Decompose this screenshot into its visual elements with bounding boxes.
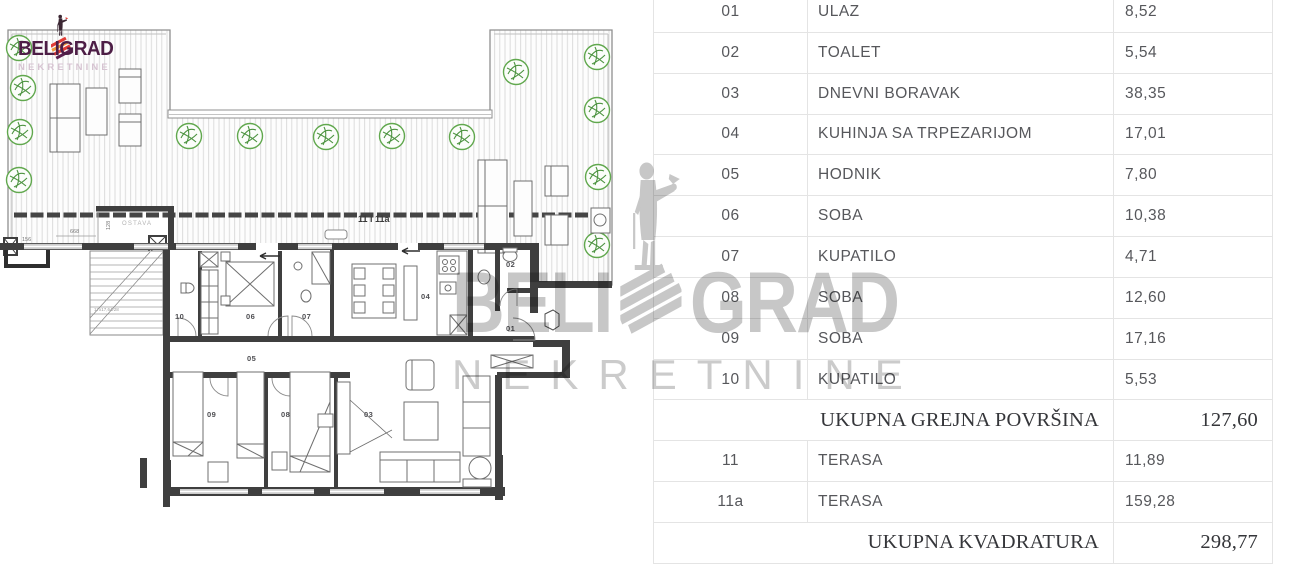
table-row: 08 SOBA 12,60 — [654, 278, 1272, 319]
room-area-cell: 7,80 — [1113, 155, 1272, 195]
screenshot-stage: OSTAVA 668 128 156 17x17,64/28 — [0, 0, 1314, 564]
room-name-cell: SOBA — [807, 196, 1113, 236]
plan-label-10: 10 — [175, 312, 184, 321]
brand-right: GRAD — [59, 38, 113, 61]
room-number-cell: 04 — [654, 115, 807, 155]
entrance-arrow — [260, 253, 280, 259]
room-number-cell: 07 — [654, 237, 807, 277]
room-area-cell: 11,89 — [1113, 441, 1272, 481]
room-area-cell: 159,28 — [1113, 482, 1272, 522]
plan-label-05: 05 — [247, 354, 256, 363]
room-name-cell: SOBA — [807, 278, 1113, 318]
brand-subtitle: NEKRETNINE — [18, 62, 114, 73]
summary-value-cell: 127,60 — [1113, 400, 1272, 440]
floor-plan: OSTAVA 668 128 156 17x17,64/28 — [0, 0, 660, 564]
plan-label-07: 07 — [302, 312, 311, 321]
table-summary-row: UKUPNA GREJNA POVRŠINA 127,60 — [654, 400, 1272, 441]
table-row: 04 KUHINJA SA TRPEZARIJOM 17,01 — [654, 115, 1272, 156]
room-name-cell: ULAZ — [807, 0, 1113, 32]
room-area-cell: 17,01 — [1113, 115, 1272, 155]
plan-label-06: 06 — [246, 312, 255, 321]
room-number-cell: 01 — [654, 0, 807, 32]
plan-label-04: 04 — [421, 292, 431, 301]
room-area-cell: 4,71 — [1113, 237, 1272, 277]
brand-left: BELI — [18, 38, 59, 61]
room-name-cell: TOALET — [807, 33, 1113, 73]
dim-128: 128 — [106, 221, 112, 230]
table-row: 07 KUPATILO 4,71 — [654, 237, 1272, 278]
summary-label-cell: UKUPNA KVADRATURA — [654, 523, 1113, 563]
storage-label: OSTAVA — [122, 221, 152, 227]
table-row: 01 ULAZ 8,52 — [654, 0, 1272, 33]
table-summary-row: UKUPNA KVADRATURA 298,77 — [654, 523, 1272, 564]
summary-value-cell: 298,77 — [1113, 523, 1272, 563]
room-number-cell: 05 — [654, 155, 807, 195]
room-number-cell: 11a — [654, 482, 807, 522]
plan-label-08: 08 — [281, 410, 290, 419]
dim-156: 156 — [22, 237, 31, 243]
brand-logo: BELI GRAD NEKRETNINE — [18, 12, 114, 73]
room-number-cell: 06 — [654, 196, 807, 236]
room-name-cell: KUPATILO — [807, 360, 1113, 400]
room-number-cell: 09 — [654, 319, 807, 359]
table-row: 11a TERASA 159,28 — [654, 482, 1272, 523]
room-name-cell: TERASA — [807, 441, 1113, 481]
room-name-cell: SOBA — [807, 319, 1113, 359]
table-row: 03 DNEVNI BORAVAK 38,35 — [654, 74, 1272, 115]
room-area-cell: 10,38 — [1113, 196, 1272, 236]
room-area-cell: 12,60 — [1113, 278, 1272, 318]
room-name-cell: KUHINJA SA TRPEZARIJOM — [807, 115, 1113, 155]
table-row: 06 SOBA 10,38 — [654, 196, 1272, 237]
room-number-cell: 11 — [654, 441, 807, 481]
brand-logo-text: BELI GRAD — [18, 38, 102, 61]
table-row: 09 SOBA 17,16 — [654, 319, 1272, 360]
plan-label-09: 09 — [207, 410, 216, 419]
room-name-cell: HODNIK — [807, 155, 1113, 195]
room-number-cell: 08 — [654, 278, 807, 318]
plan-label-02: 02 — [506, 260, 515, 269]
room-area-cell: 5,54 — [1113, 33, 1272, 73]
dim-668: 668 — [70, 229, 79, 235]
room-number-cell: 03 — [654, 74, 807, 114]
plan-label-03: 03 — [364, 410, 373, 419]
area-table: 01 ULAZ 8,52 02 TOALET 5,54 03 DNEVNI BO… — [653, 0, 1273, 564]
table-row: 02 TOALET 5,54 — [654, 33, 1272, 74]
staircase: 17x17,64/28 — [90, 251, 163, 335]
table-row: 11 TERASA 11,89 — [654, 441, 1272, 482]
room-area-cell: 5,53 — [1113, 360, 1272, 400]
room-name-cell: KUPATILO — [807, 237, 1113, 277]
stair-label: 17x17,64/28 — [94, 307, 119, 312]
room-area-cell: 38,35 — [1113, 74, 1272, 114]
entry-badge-icon — [545, 310, 559, 330]
room-area-cell: 8,52 — [1113, 0, 1272, 32]
room-area-cell: 17,16 — [1113, 319, 1272, 359]
table-row: 05 HODNIK 7,80 — [654, 155, 1272, 196]
table-row: 10 KUPATILO 5,53 — [654, 360, 1272, 401]
plan-label-01: 01 — [506, 324, 515, 333]
terrace-area-label: 11 i 11a — [358, 214, 391, 224]
summary-label-cell: UKUPNA GREJNA POVRŠINA — [654, 400, 1113, 440]
room-name-cell: DNEVNI BORAVAK — [807, 74, 1113, 114]
room-name-cell: TERASA — [807, 482, 1113, 522]
room-number-cell: 02 — [654, 33, 807, 73]
room-number-cell: 10 — [654, 360, 807, 400]
